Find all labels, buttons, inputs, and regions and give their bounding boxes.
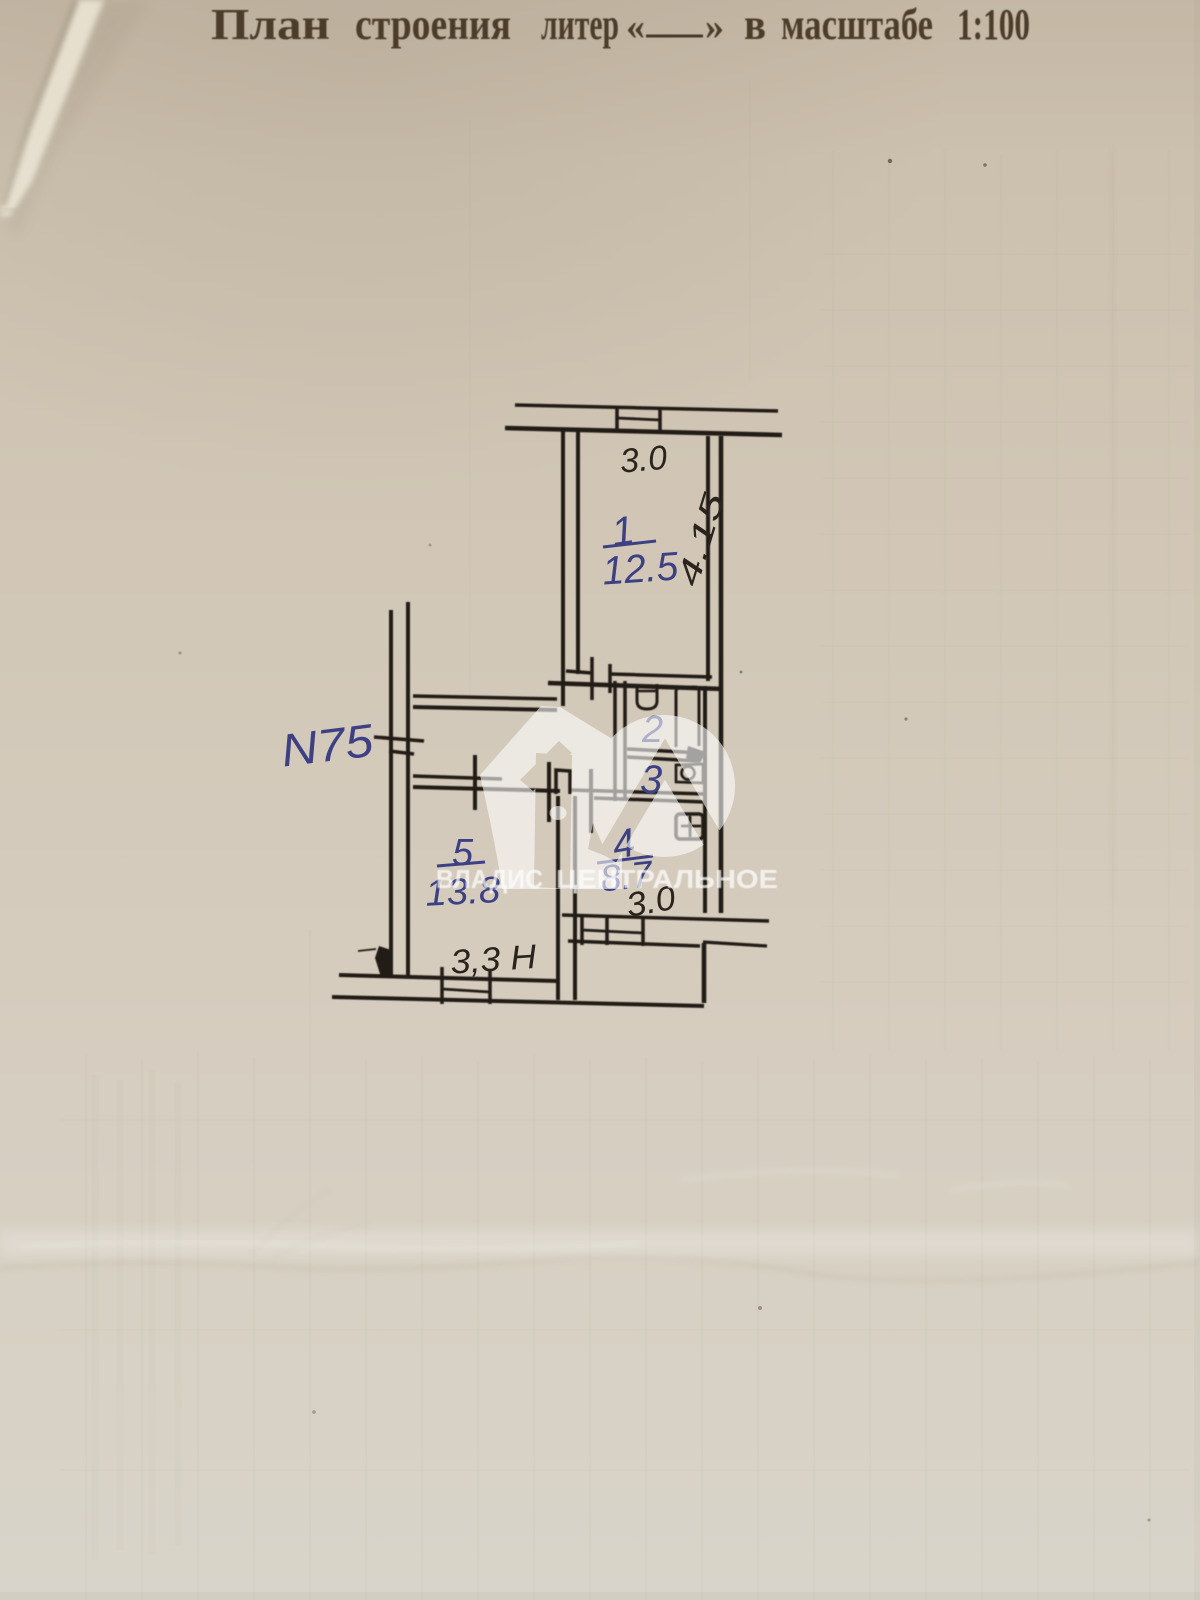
svg-text:»: »	[705, 6, 724, 48]
svg-text:План: План	[211, 0, 330, 49]
svg-text:ВЛАДИС: ВЛАДИС	[436, 864, 543, 894]
svg-text:3.0: 3.0	[618, 439, 668, 481]
svg-text:«: «	[626, 6, 645, 48]
svg-text:1:100: 1:100	[957, 0, 1030, 49]
svg-text:ЦЕНТРАЛЬНОЕ: ЦЕНТРАЛЬНОЕ	[556, 864, 778, 894]
svg-text:в: в	[744, 0, 766, 49]
svg-text:12.5: 12.5	[601, 544, 681, 593]
svg-text:литер: литер	[541, 0, 619, 49]
svg-text:строения: строения	[355, 0, 511, 49]
svg-text:масштабе: масштабе	[781, 0, 933, 49]
